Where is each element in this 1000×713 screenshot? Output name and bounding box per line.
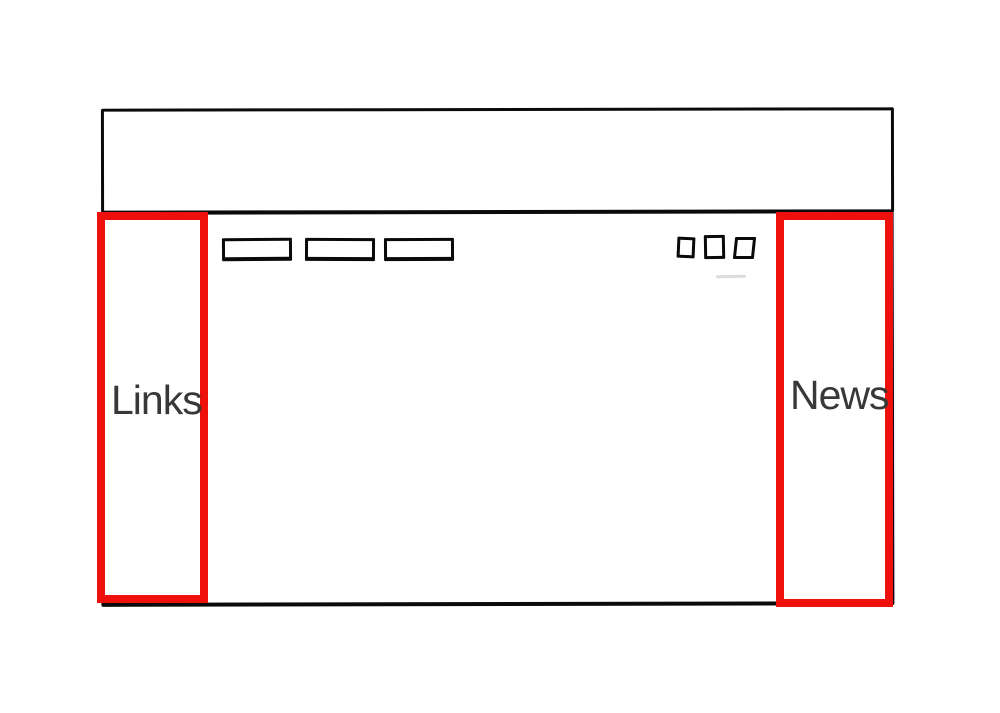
nav-button-placeholder: [384, 238, 454, 261]
wireframe-canvas: Links News: [0, 0, 1000, 713]
utility-square-icon: [733, 237, 756, 259]
utility-square-icon: [704, 235, 725, 259]
links-label: Links: [111, 380, 202, 421]
utility-square-icon: [677, 237, 696, 259]
header-banner-box: [101, 107, 894, 213]
news-region-highlight: News: [776, 212, 893, 607]
news-label: News: [790, 375, 889, 416]
nav-button-placeholder: [305, 238, 375, 261]
pencil-smudge: [716, 275, 746, 279]
links-region-highlight: Links: [97, 212, 208, 603]
nav-button-placeholder: [222, 238, 292, 261]
